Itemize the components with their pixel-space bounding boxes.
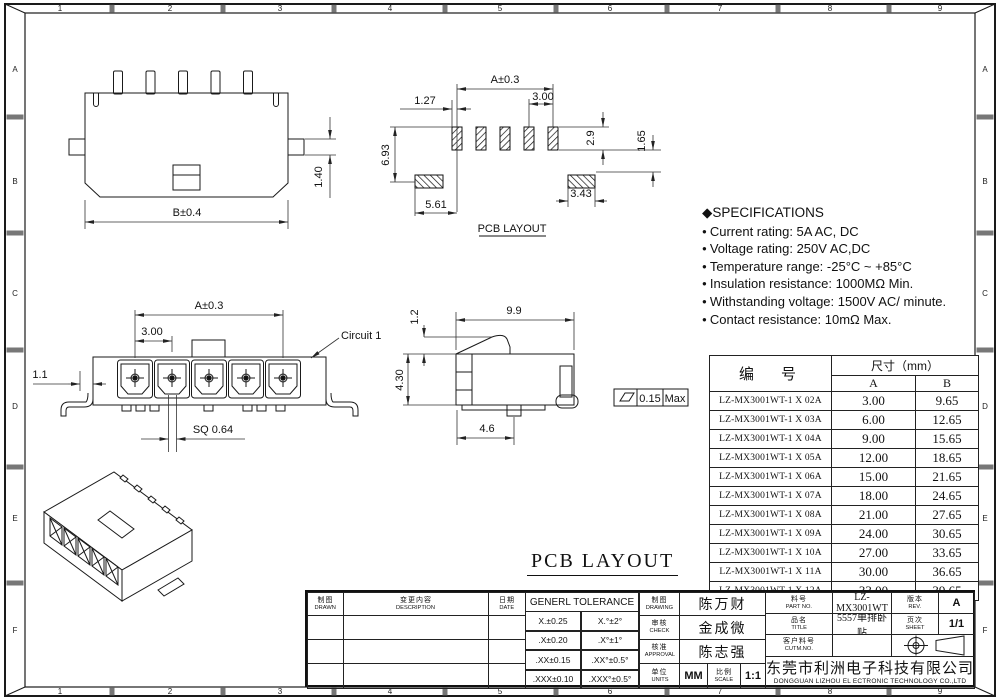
- dim-99: 9.9: [506, 305, 521, 317]
- cell-dim-a: 21.00: [832, 506, 916, 525]
- dim-a-top: A±0.3: [491, 74, 520, 86]
- front-view: [61, 340, 358, 416]
- approval-name: 陈志强: [679, 639, 766, 664]
- cell-part-number: LZ-MX3001WT-1 X 02A: [710, 392, 832, 411]
- spec-text: Voltage rating: 250V AC,DC: [710, 240, 870, 258]
- cell-dim-a: 9.00: [832, 430, 916, 449]
- ruler-top-number: 5: [445, 4, 555, 14]
- ruler-top-number: 6: [555, 4, 665, 14]
- revision-row-cell: [488, 639, 526, 664]
- dim-sq064: SQ 0.64: [193, 424, 233, 436]
- cell-dim-a: 15.00: [832, 468, 916, 487]
- flatness-value: 0.15: [639, 393, 660, 405]
- pcb-layout-label-large: PCB LAYOUT: [527, 550, 678, 576]
- ruler-top-number: 3: [225, 4, 335, 14]
- spec-item: ● Withstanding voltage: 1500V AC/ minute…: [702, 293, 994, 311]
- bullet-icon: ●: [702, 311, 707, 329]
- date-header: 日期 DATE: [488, 592, 526, 616]
- dim-140: 1.40: [313, 166, 325, 187]
- rev-label: 版本 REV.: [891, 592, 939, 614]
- ruler-left-letter: A: [6, 13, 24, 125]
- isometric-view: [44, 472, 192, 601]
- ruler-top-number: 7: [665, 4, 775, 14]
- revision-row-cell: [343, 663, 489, 689]
- flatness-icon: [620, 393, 634, 401]
- title-label: 品名 TITLE: [765, 613, 833, 635]
- ruler-top: 123456789: [5, 4, 995, 14]
- drawing-label: 制图 DRAWING: [639, 592, 680, 616]
- company-name-cn: 东莞市利洲电子科技有限公司: [766, 660, 974, 678]
- dim-29: 2.9: [585, 130, 597, 145]
- dim-343: 3.43: [570, 188, 591, 200]
- dim-b: B±0.4: [173, 207, 202, 219]
- tolerance-linear: .XXX±0.10: [525, 670, 581, 690]
- cell-part-number: LZ-MX3001WT-1 X 08A: [710, 506, 832, 525]
- tolerance-angular: .XX°±0.5°: [581, 650, 639, 670]
- cell-dim-b: 27.65: [916, 506, 979, 525]
- table-row: LZ-MX3001WT-1 X 11A 30.00 36.65: [710, 563, 979, 582]
- units-label: 单位 UNITS: [639, 663, 680, 689]
- dim-430: 4.30: [394, 369, 406, 390]
- rear-view: [69, 71, 304, 197]
- table-row: LZ-MX3001WT-1 X 03A 6.00 12.65: [710, 411, 979, 430]
- cell-dim-b: 15.65: [916, 430, 979, 449]
- rev-value: A: [938, 592, 975, 614]
- cell-dim-b: 24.65: [916, 487, 979, 506]
- ruler-bottom-number: 2: [115, 687, 225, 696]
- ruler-left-letter: D: [6, 350, 24, 462]
- cell-dim-a: 3.00: [832, 392, 916, 411]
- table-row: LZ-MX3001WT-1 X 08A 21.00 27.65: [710, 506, 979, 525]
- tolerance-angular: .X°±1°: [581, 631, 639, 651]
- dim-11: 1.1: [32, 369, 47, 381]
- flatness-max: Max: [665, 393, 686, 405]
- specifications-block: ◆SPECIFICATIONS ● Current rating: 5A AC,…: [702, 204, 994, 328]
- spec-text: Temperature range: -25°C ~ +85°C: [710, 258, 912, 276]
- spec-item: ● Insulation resistance: 1000MΩ Min.: [702, 275, 994, 293]
- revision-row-cell: [307, 639, 344, 664]
- tolerance-row: X.±0.25 X.°±2°: [525, 611, 639, 631]
- parts-table-header: 编 号 尺寸（mm） A B: [710, 356, 979, 392]
- ruler-bottom-number: 1: [5, 687, 115, 696]
- revision-row-cell: [488, 615, 526, 640]
- cell-dim-b: 30.65: [916, 525, 979, 544]
- third-angle-projection-icon: [892, 635, 974, 656]
- dim-a-front: A±0.3: [195, 300, 224, 312]
- bullet-icon: ●: [702, 223, 707, 241]
- tolerance-title: GENERL TOLERANCE: [525, 592, 639, 612]
- dim-693: 6.93: [380, 144, 392, 165]
- ruler-left-letter: F: [6, 575, 24, 687]
- tolerance-row: .X±0.20 .X°±1°: [525, 631, 639, 651]
- table-row: LZ-MX3001WT-1 X 07A 18.00 24.65: [710, 487, 979, 506]
- ruler-left-letter: B: [6, 125, 24, 237]
- parts-table: 编 号 尺寸（mm） A B LZ-MX3001WT-1 X 02A 3.00 …: [709, 355, 979, 601]
- ruler-top-number: 2: [115, 4, 225, 14]
- header-col-a: A: [832, 376, 916, 392]
- spec-text: Withstanding voltage: 1500V AC/ minute.: [710, 293, 946, 311]
- bullet-icon: ●: [702, 293, 707, 311]
- scale-label: 比例 SCALE: [707, 663, 741, 689]
- table-row: LZ-MX3001WT-1 X 05A 12.00 18.65: [710, 449, 979, 468]
- dim-46: 4.6: [479, 423, 494, 435]
- ruler-top-number: 4: [335, 4, 445, 14]
- tolerance-linear: .XX±0.15: [525, 650, 581, 670]
- table-row: LZ-MX3001WT-1 X 10A 27.00 33.65: [710, 544, 979, 563]
- cell-dim-a: 6.00: [832, 411, 916, 430]
- tolerance-angular: X.°±2°: [581, 611, 639, 631]
- header-col-b: B: [916, 376, 979, 392]
- side-view: [456, 335, 578, 416]
- cell-dim-a: 30.00: [832, 563, 916, 582]
- cell-dim-b: 36.65: [916, 563, 979, 582]
- revision-row-cell: [343, 639, 489, 664]
- specifications-title: ◆SPECIFICATIONS: [702, 204, 994, 222]
- partno-value: LZ-MX3001WT: [832, 592, 892, 614]
- cell-dim-b: 18.65: [916, 449, 979, 468]
- spec-text: Current rating: 5A AC, DC: [710, 223, 859, 241]
- cell-dim-b: 21.65: [916, 468, 979, 487]
- dim-300-front: 3.00: [141, 326, 162, 338]
- custno-label: 客户料号 CUTM.NO.: [765, 634, 833, 657]
- ruler-left-letter: C: [6, 238, 24, 350]
- cell-dim-b: 12.65: [916, 411, 979, 430]
- revision-row-cell: [488, 663, 526, 689]
- ruler-left: ABCDEF: [6, 13, 24, 687]
- revision-row-cell: [343, 615, 489, 640]
- drawing-name: 陈万财: [679, 592, 766, 616]
- cell-dim-b: 33.65: [916, 544, 979, 563]
- tolerance-linear: X.±0.25: [525, 611, 581, 631]
- cell-dim-a: 12.00: [832, 449, 916, 468]
- dim-300-top: 3.00: [532, 91, 553, 103]
- cell-part-number: LZ-MX3001WT-1 X 09A: [710, 525, 832, 544]
- ruler-top-number: 8: [775, 4, 885, 14]
- cell-dim-a: 24.00: [832, 525, 916, 544]
- company-block: 东莞市利洲电子科技有限公司 DONGGUAN LIZHOU EL ECTRONI…: [765, 656, 975, 689]
- company-name-en: DONGGUAN LIZHOU EL ECTRONIC TECHNOLOGY C…: [774, 678, 966, 685]
- table-row: LZ-MX3001WT-1 X 04A 9.00 15.65: [710, 430, 979, 449]
- title-value: 5557单排卧贴: [832, 613, 892, 635]
- table-row: LZ-MX3001WT-1 X 02A 3.00 9.65: [710, 392, 979, 411]
- dim-165: 1.65: [636, 130, 648, 151]
- approval-label: 核准 APPROVAL: [639, 639, 680, 664]
- ruler-top-number: 9: [885, 4, 995, 14]
- bullet-icon: ●: [702, 240, 707, 258]
- check-label: 审核 CHECK: [639, 615, 680, 640]
- sheet-label: 页次 SHEET: [891, 613, 939, 635]
- cell-part-number: LZ-MX3001WT-1 X 03A: [710, 411, 832, 430]
- dim-561: 5.61: [425, 199, 446, 211]
- drawing-sheet: B±0.4 1.40: [0, 0, 1000, 700]
- table-row: LZ-MX3001WT-1 X 09A 24.00 30.65: [710, 525, 979, 544]
- drawn-header: 制图 DRAWN: [307, 592, 344, 616]
- header-size: 尺寸（mm）: [832, 356, 979, 376]
- spec-text: Insulation resistance: 1000MΩ Min.: [710, 275, 913, 293]
- spec-item: ● Current rating: 5A AC, DC: [702, 223, 994, 241]
- scale-value: 1:1: [740, 663, 766, 689]
- rear-view-dims: [85, 117, 336, 229]
- cell-part-number: LZ-MX3001WT-1 X 05A: [710, 449, 832, 468]
- revision-row-cell: [307, 663, 344, 689]
- cell-part-number: LZ-MX3001WT-1 X 07A: [710, 487, 832, 506]
- cell-part-number: LZ-MX3001WT-1 X 04A: [710, 430, 832, 449]
- cell-part-number: LZ-MX3001WT-1 X 10A: [710, 544, 832, 563]
- spec-item: ● Voltage rating: 250V AC,DC: [702, 240, 994, 258]
- spec-item: ● Contact resistance: 10mΩ Max.: [702, 311, 994, 329]
- description-header: 变更内容 DESCRIPTION: [343, 592, 489, 616]
- revision-row-cell: [307, 615, 344, 640]
- left-leg: [61, 393, 93, 416]
- cell-part-number: LZ-MX3001WT-1 X 11A: [710, 563, 832, 582]
- tolerance-row: .XXX±0.10 .XXX°±0.5°: [525, 670, 639, 690]
- pcb-top-pads: [415, 127, 595, 188]
- cell-dim-a: 27.00: [832, 544, 916, 563]
- circuit-label: Circuit 1: [341, 330, 381, 342]
- tolerance-row: .XX±0.15 .XX°±0.5°: [525, 650, 639, 670]
- cell-dim-a: 18.00: [832, 487, 916, 506]
- cell-dim-b: 9.65: [916, 392, 979, 411]
- table-row: LZ-MX3001WT-1 X 06A 15.00 21.65: [710, 468, 979, 487]
- ruler-top-number: 1: [5, 4, 115, 14]
- partno-label: 料号 PART NO.: [765, 592, 833, 614]
- cell-part-number: LZ-MX3001WT-1 X 06A: [710, 468, 832, 487]
- spec-item: ● Temperature range: -25°C ~ +85°C: [702, 258, 994, 276]
- specifications-list: ● Current rating: 5A AC, DC ● Voltage ra…: [702, 223, 994, 329]
- check-name: 金成微: [679, 615, 766, 640]
- ruler-left-letter: E: [6, 462, 24, 574]
- tolerance-angular: .XXX°±0.5°: [581, 670, 639, 690]
- dim-12: 1.2: [409, 309, 421, 324]
- dim-127: 1.27: [414, 95, 435, 107]
- tolerance-table: X.±0.25 X.°±2° .X±0.20 .X°±1° .XX±0.15 .…: [525, 611, 639, 689]
- pcb-layout-label-small: PCB LAYOUT: [478, 223, 547, 235]
- units-value: MM: [679, 663, 708, 689]
- bullet-icon: ●: [702, 275, 707, 293]
- title-block: 制图 DRAWN 变更内容 DESCRIPTION 日期 DATE GENERL…: [305, 590, 975, 687]
- sheet-value: 1/1: [938, 613, 975, 635]
- diamond-icon: ◆: [702, 205, 712, 220]
- spec-text: Contact resistance: 10mΩ Max.: [710, 311, 892, 329]
- right-leg: [326, 393, 358, 416]
- bullet-icon: ●: [702, 258, 707, 276]
- tolerance-linear: .X±0.20: [525, 631, 581, 651]
- header-part-number: 编 号: [710, 356, 832, 392]
- pin-symbols: [126, 369, 292, 387]
- custno-value: [832, 634, 892, 657]
- ruler-right-letter: A: [976, 13, 994, 125]
- projection-symbol-cell: [891, 634, 975, 657]
